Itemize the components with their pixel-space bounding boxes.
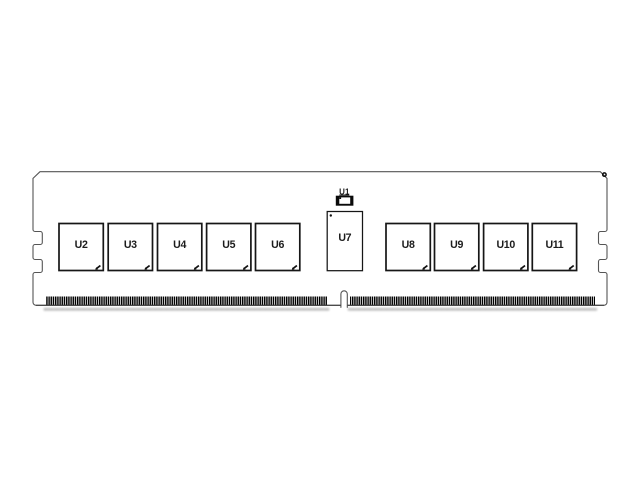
svg-text:U6: U6 [271,239,284,251]
svg-text:U3: U3 [124,239,137,251]
svg-text:U5: U5 [222,239,235,251]
svg-text:U7: U7 [338,232,351,244]
svg-text:U11: U11 [545,239,563,251]
svg-text:U10: U10 [497,239,516,251]
svg-text:U4: U4 [173,239,186,251]
svg-text:U8: U8 [402,239,415,251]
svg-text:U9: U9 [450,239,463,251]
svg-text:U2: U2 [75,239,88,251]
